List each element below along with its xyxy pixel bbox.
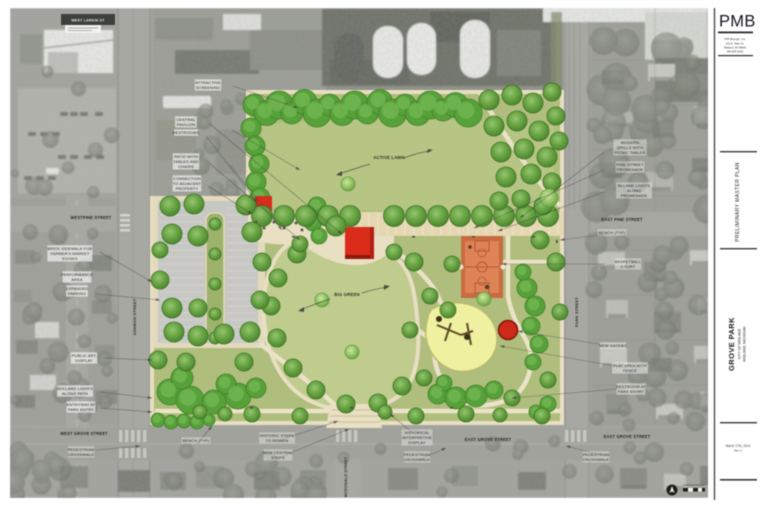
svg-text:989.835.0000: 989.835.0000 <box>727 49 744 53</box>
svg-text:CHAIRS: CHAIRS <box>178 164 194 169</box>
svg-text:March 17th, 2014: March 17th, 2014 <box>726 444 751 448</box>
svg-text:ACTIVE LAWN: ACTIVE LAWN <box>373 155 404 160</box>
svg-text:EAST GROVE STREET: EAST GROVE STREET <box>465 437 512 442</box>
svg-text:CITY OF MIDLAND: CITY OF MIDLAND <box>738 328 742 359</box>
svg-text:DISPLAY: DISPLAY <box>75 358 92 363</box>
svg-text:AREA: AREA <box>71 277 82 282</box>
svg-text:PM Blough, Inc: PM Blough, Inc <box>725 37 746 41</box>
svg-text:PRELIMINARY MASTER PLAN: PRELIMINARY MASTER PLAN <box>735 162 741 242</box>
svg-text:NEW GAZEBO: NEW GAZEBO <box>599 343 627 348</box>
svg-text:CROSSWALK: CROSSWALK <box>404 457 430 462</box>
svg-text:EAST GROVE STREET: EAST GROVE STREET <box>604 434 651 439</box>
svg-text:PICNIC TABLES: PICNIC TABLES <box>615 150 646 155</box>
svg-text:ASHMAN STREET: ASHMAN STREET <box>132 298 137 335</box>
svg-text:CROSSWALK: CROSSWALK <box>68 452 94 457</box>
svg-text:KIOSKS: KIOSKS <box>62 256 78 261</box>
svg-text:210 E. Main St.: 210 E. Main St. <box>726 41 745 45</box>
svg-text:GROVE PARK: GROVE PARK <box>727 317 736 371</box>
svg-text:Midland, MI 48640: Midland, MI 48640 <box>724 45 747 49</box>
svg-text:BENCH (TYP): BENCH (TYP) <box>599 230 626 235</box>
svg-text:PARKING: PARKING <box>68 291 86 296</box>
svg-text:PMB: PMB <box>719 13 756 31</box>
svg-text:STEPS: STEPS <box>271 455 285 460</box>
svg-text:ALONG PATH: ALONG PATH <box>62 391 88 396</box>
svg-text:WEST GROVE STREET: WEST GROVE STREET <box>60 431 108 436</box>
svg-text:PARK STREET: PARK STREET <box>574 297 579 327</box>
svg-text:PAVILION: PAVILION <box>177 122 196 127</box>
svg-text:DISPLAY: DISPLAY <box>408 440 425 445</box>
svg-text:CROSSWALK: CROSSWALK <box>583 457 609 462</box>
svg-text:FENCE: FENCE <box>623 368 637 373</box>
svg-text:PARK ENTRY: PARK ENTRY <box>68 407 94 412</box>
svg-text:SCREENING: SCREENING <box>196 85 220 90</box>
svg-text:WESTPINE STREET: WESTPINE STREET <box>71 215 112 220</box>
svg-text:MCDONALD STREET: MCDONALD STREET <box>344 456 348 497</box>
svg-text:TO REMAIN: TO REMAIN <box>266 438 289 443</box>
svg-text:BIG GREEN: BIG GREEN <box>334 292 359 297</box>
svg-text:PARK ENTRY: PARK ENTRY <box>618 389 644 394</box>
svg-text:BENCH (TYP): BENCH (TYP) <box>183 438 210 443</box>
svg-text:RESTROOMS: RESTROOMS <box>173 130 200 135</box>
svg-text:Rev 2: Rev 2 <box>734 449 742 453</box>
svg-text:PROMENADE: PROMENADE <box>621 193 648 198</box>
svg-text:MIDLAND, MICHIGAN: MIDLAND, MICHIGAN <box>742 326 746 362</box>
svg-text:PROMENADE: PROMENADE <box>617 167 644 172</box>
svg-text:PROPERTY: PROPERTY <box>176 186 199 191</box>
svg-text:WEST LARKIN ST: WEST LARKIN ST <box>71 19 105 23</box>
svg-text:EAST PINE STREET: EAST PINE STREET <box>601 217 643 222</box>
svg-text:COURT: COURT <box>621 264 636 269</box>
